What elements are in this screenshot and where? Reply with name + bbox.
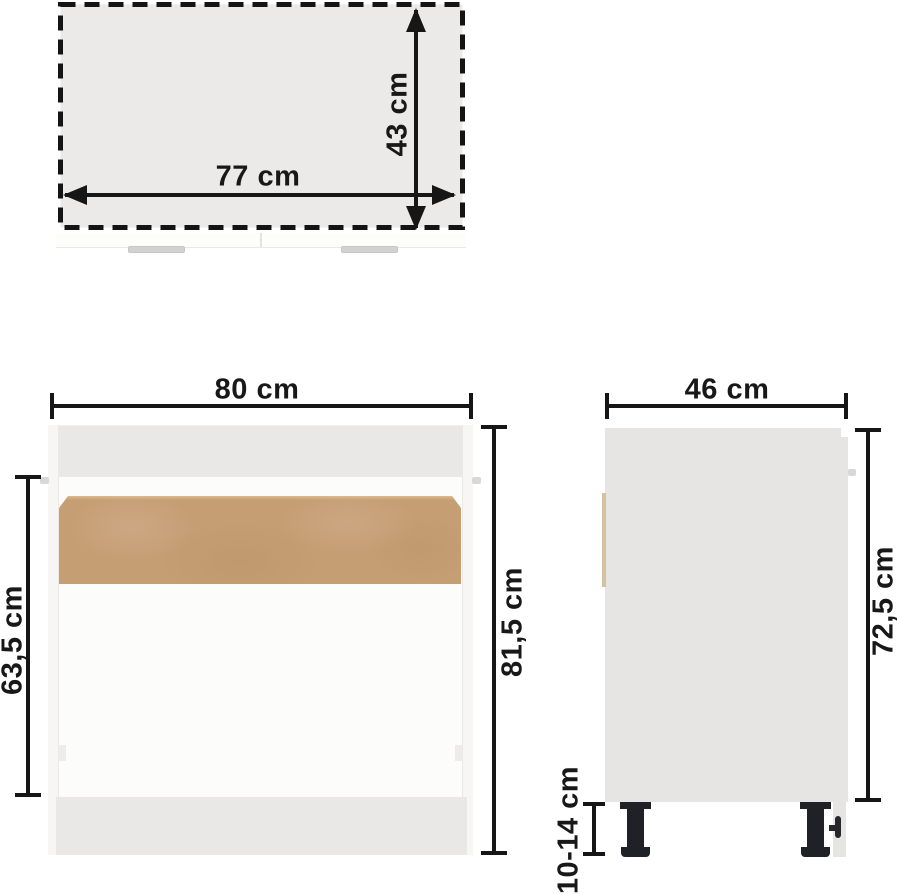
right-hinge-pin	[472, 477, 481, 484]
leg-adjuster-knob	[835, 816, 841, 838]
wood-panel-side-edge	[602, 493, 606, 587]
dimension-line	[492, 427, 496, 853]
leg-flange	[620, 802, 651, 809]
top-view-door-seam	[260, 233, 262, 247]
dimension-tick	[481, 851, 507, 855]
leg-foot	[621, 847, 650, 857]
dimension-tick	[605, 393, 609, 419]
dimension-tick	[583, 802, 605, 806]
leg-stem	[807, 809, 824, 848]
front-total-height-label: 81,5 cm	[497, 567, 530, 677]
left-hinge-pin	[40, 477, 49, 484]
front-top-rail	[59, 426, 462, 477]
front-bottom-plinth	[56, 797, 467, 855]
dimension-tick	[15, 475, 41, 479]
dimension-tick	[855, 798, 881, 802]
dimension-tick	[50, 393, 54, 419]
top-width-label: 77 cm	[216, 161, 301, 194]
arrowhead-up-icon	[406, 8, 426, 32]
front-interior-height-label: 63,5 cm	[0, 585, 30, 695]
dimension-line	[65, 193, 454, 197]
right-hinge-notch	[455, 745, 462, 761]
dimension-tick	[855, 428, 881, 432]
leg-foot	[801, 847, 830, 857]
leg-stem	[627, 809, 644, 848]
arrowhead-right-icon	[432, 185, 456, 205]
arrowhead-left-icon	[63, 185, 87, 205]
dimension-tick	[583, 852, 605, 856]
arrowhead-down-icon	[406, 206, 426, 230]
wood-sink-panel	[59, 496, 461, 584]
side-top-corner-notch	[841, 428, 848, 437]
adjustable-leg-front	[620, 802, 651, 857]
adjustable-leg-back	[800, 802, 831, 857]
side-carcass-height-label: 72,5 cm	[868, 546, 900, 656]
leg-height-dimension	[583, 802, 605, 856]
dimension-line	[414, 10, 418, 228]
front-width-label: 80 cm	[215, 374, 300, 407]
front-right-side-panel	[462, 425, 473, 855]
left-hinge-notch	[59, 745, 66, 761]
dimension-tick	[481, 425, 507, 429]
leg-flange	[800, 802, 831, 809]
dimension-tick	[844, 393, 848, 419]
dimension-line	[592, 804, 596, 854]
cabinet-front-body	[48, 425, 473, 855]
dimension-tick	[469, 393, 473, 419]
right-handle-top-view	[341, 246, 398, 253]
top-depth-label: 43 cm	[382, 72, 415, 157]
front-left-side-panel	[48, 425, 59, 855]
side-depth-label: 46 cm	[685, 374, 770, 407]
dimension-tick	[15, 793, 41, 797]
left-handle-top-view	[128, 246, 185, 253]
leg-height-label: 10-14 cm	[553, 766, 586, 894]
cabinet-side-body	[605, 428, 848, 802]
